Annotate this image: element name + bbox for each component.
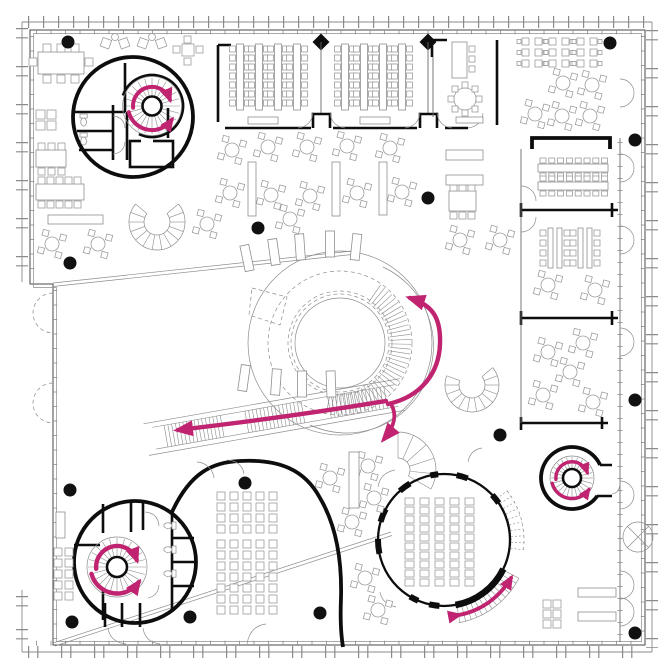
seat (243, 492, 251, 500)
seat (465, 561, 474, 568)
seat (217, 525, 225, 533)
round-table (192, 209, 221, 238)
round-table (83, 229, 112, 258)
seat (450, 579, 459, 586)
seat (256, 492, 264, 500)
round-table (577, 70, 606, 99)
shelf (268, 239, 281, 266)
seat (217, 492, 225, 500)
round-table (555, 357, 584, 386)
seat (435, 507, 444, 514)
column-dot (422, 192, 435, 205)
shelf (56, 512, 65, 538)
seat (269, 551, 277, 559)
shelf (578, 612, 616, 621)
round-table (575, 101, 604, 130)
shelf (350, 234, 362, 261)
round-table (528, 380, 557, 409)
seat (54, 559, 62, 567)
seat (450, 507, 459, 514)
shelf (446, 150, 483, 160)
seat (243, 503, 251, 511)
seat (269, 573, 277, 581)
seat (405, 579, 414, 586)
round-table (578, 387, 607, 416)
curved-bench-right (445, 368, 499, 412)
shelf (326, 371, 336, 397)
seat (65, 581, 73, 589)
seat (465, 579, 474, 586)
seat (256, 595, 264, 603)
round-table (387, 177, 416, 206)
seat (243, 514, 251, 522)
seat (230, 606, 238, 614)
double-door-swing (620, 481, 634, 509)
seat (420, 570, 429, 577)
column-dot (239, 477, 252, 490)
seat (420, 525, 429, 532)
seat (217, 551, 225, 559)
seat (435, 552, 444, 559)
seat (420, 516, 429, 523)
round-table (332, 131, 361, 160)
double-door-swing (620, 328, 634, 356)
round-table (580, 275, 609, 304)
seat (450, 552, 459, 559)
seat (256, 514, 264, 522)
seat (243, 551, 251, 559)
seat (435, 543, 444, 550)
seat (405, 498, 414, 505)
seat (553, 620, 561, 628)
shelf (238, 365, 251, 392)
seat (243, 540, 251, 548)
seat (230, 595, 238, 603)
seat (435, 579, 444, 586)
round-table (217, 135, 246, 164)
seat (405, 534, 414, 541)
seat (450, 534, 459, 541)
seat (230, 540, 238, 548)
round-table (295, 181, 324, 210)
seat (405, 570, 414, 577)
seat (65, 559, 73, 567)
seat (256, 584, 264, 592)
classroom-wall (521, 417, 608, 430)
round-table (548, 68, 577, 97)
seat (256, 525, 264, 533)
table-6 (449, 191, 476, 211)
seat (420, 561, 429, 568)
round-table (350, 563, 379, 592)
seat (420, 507, 429, 514)
ramp-landing (249, 288, 287, 325)
seat (450, 561, 459, 568)
round-table (37, 229, 66, 258)
seat (217, 514, 225, 522)
seat (243, 525, 251, 533)
seat (465, 534, 474, 541)
seat (450, 543, 459, 550)
seat (465, 525, 474, 532)
seat (256, 503, 264, 511)
seat (420, 552, 429, 559)
seat (450, 498, 459, 505)
ramp-up-arrow (388, 298, 440, 404)
double-door-swing (620, 571, 634, 599)
seat (543, 620, 551, 628)
desk-row (230, 44, 251, 110)
seat (243, 562, 251, 570)
double-door-swing (620, 226, 634, 254)
seat (269, 503, 277, 511)
seat (256, 551, 264, 559)
double-door-swing (620, 79, 634, 107)
desk-row (287, 44, 308, 110)
seat (269, 492, 277, 500)
column-dot (314, 607, 327, 620)
table-6 (36, 150, 66, 167)
seat (256, 573, 264, 581)
skylight-symbol (623, 522, 653, 552)
seat (435, 516, 444, 523)
shelf (271, 369, 282, 396)
desk-row (354, 44, 375, 110)
shelf (326, 231, 335, 257)
seat (256, 606, 264, 614)
classroom-wall (521, 203, 618, 217)
seat (465, 570, 474, 577)
floor-plan-canvas (0, 0, 670, 670)
seat (256, 540, 264, 548)
round-table (520, 99, 549, 128)
seat (230, 562, 238, 570)
desk-row (373, 44, 394, 110)
square-table (182, 44, 194, 56)
dashed-entry-arc (33, 293, 53, 333)
seat (269, 540, 277, 548)
desk-row (249, 44, 270, 110)
dashed-entry-arc (33, 383, 53, 423)
round-table (342, 178, 371, 207)
seat (543, 610, 551, 618)
seat (230, 492, 238, 500)
corridor-double-doors (620, 79, 634, 626)
seat (450, 525, 459, 532)
stair-treads (88, 78, 593, 623)
conference-table (38, 52, 84, 74)
column-dot (629, 627, 642, 640)
column-dot (62, 36, 75, 49)
seat (435, 534, 444, 541)
seat (405, 525, 414, 532)
seat (230, 525, 238, 533)
column-dot (629, 134, 642, 147)
seat (217, 595, 225, 603)
round-table (253, 132, 282, 161)
classroom-wall (521, 311, 618, 325)
seat (256, 562, 264, 570)
door-frame (313, 114, 330, 128)
door-jamb-arc (400, 483, 410, 491)
seat (54, 570, 62, 578)
floor-plan-drawing (0, 0, 670, 670)
seat (465, 516, 474, 523)
seat (243, 573, 251, 581)
round-table (292, 132, 321, 161)
seat (230, 551, 238, 559)
seat (217, 503, 225, 511)
seat (435, 498, 444, 505)
desk-row (268, 44, 289, 110)
door-jamb-arc (429, 604, 439, 606)
round-table (568, 328, 597, 357)
seat (553, 600, 561, 608)
seat (420, 579, 429, 586)
seat (543, 600, 551, 608)
shelf (48, 215, 103, 224)
shelf (446, 175, 483, 185)
seat (405, 552, 414, 559)
classroom-wall (532, 138, 610, 149)
round-table (533, 337, 562, 366)
round-table (315, 463, 344, 492)
room-wall (218, 45, 231, 122)
double-door-swing (620, 598, 634, 626)
column-dot (629, 394, 642, 407)
seat (230, 573, 238, 581)
seat (230, 514, 238, 522)
shelf (349, 452, 359, 508)
seat (269, 562, 277, 570)
round-table (533, 270, 562, 299)
seat (405, 561, 414, 568)
table-10 (36, 184, 84, 200)
desk-row (392, 44, 413, 110)
round-table (375, 133, 404, 162)
seat (269, 525, 277, 533)
column-dot (184, 611, 197, 624)
seat (420, 534, 429, 541)
shelf (295, 234, 306, 261)
column-dot (64, 257, 77, 270)
seat (243, 606, 251, 614)
round-table (363, 595, 392, 624)
seat (405, 516, 414, 523)
seat (230, 503, 238, 511)
seat (65, 548, 73, 556)
seat (405, 507, 414, 514)
column-dot (64, 484, 77, 497)
curved-bench-left (129, 204, 185, 250)
shelf (379, 162, 387, 215)
seat (269, 606, 277, 614)
seat (405, 543, 414, 550)
door-jamb-arc (378, 539, 379, 554)
seat (269, 514, 277, 522)
desk-row (335, 44, 356, 110)
shelf (332, 162, 340, 216)
seat (65, 592, 73, 600)
column-dot (604, 37, 617, 50)
seat (450, 516, 459, 523)
seat (54, 548, 62, 556)
atrium-edge-north (53, 251, 352, 287)
seat (269, 584, 277, 592)
seat (217, 540, 225, 548)
door-jamb-arc (457, 475, 468, 478)
round-table (337, 507, 366, 536)
seat (450, 570, 459, 577)
round-table (445, 225, 474, 254)
seat (465, 543, 474, 550)
seat (217, 562, 225, 570)
shelf (240, 244, 254, 271)
seat (435, 525, 444, 532)
seat (65, 570, 73, 578)
seat (230, 584, 238, 592)
seat (54, 581, 62, 589)
seat (435, 561, 444, 568)
door-jamb-arc (455, 569, 503, 605)
core-room (130, 141, 173, 167)
seat (243, 595, 251, 603)
column-dot (252, 222, 265, 235)
door-jamb-arc (492, 495, 498, 503)
door-jamb-arc (430, 474, 438, 475)
shelf (578, 588, 616, 597)
double-door-swing (620, 154, 634, 182)
seat (243, 584, 251, 592)
seat (465, 507, 474, 514)
seat (420, 543, 429, 550)
seat (465, 498, 474, 505)
column-dot (494, 429, 507, 442)
seat (269, 595, 277, 603)
round-table (547, 101, 576, 130)
seat (465, 552, 474, 559)
door-jamb-arc (410, 597, 418, 601)
seat (435, 570, 444, 577)
seat (54, 592, 62, 600)
seat (553, 610, 561, 618)
seat (420, 498, 429, 505)
column-dot (66, 616, 79, 629)
round-table (215, 178, 244, 207)
shelf (248, 162, 256, 216)
shelf (298, 371, 307, 397)
door-frame (420, 114, 437, 128)
seat (217, 573, 225, 581)
seat (217, 584, 225, 592)
seat (217, 606, 225, 614)
round-table (485, 225, 514, 254)
